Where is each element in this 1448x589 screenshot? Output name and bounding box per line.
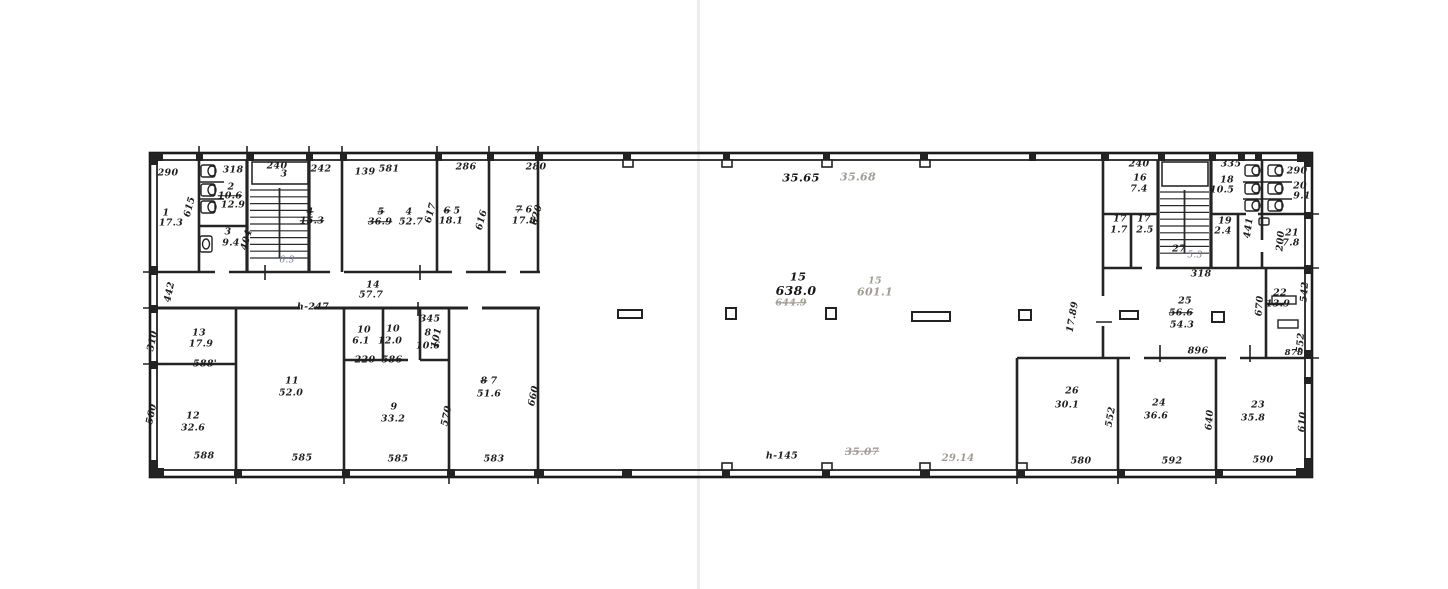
dimension-label-rotated: 670	[1254, 295, 1265, 316]
room-area-label: 35.8	[1241, 413, 1265, 423]
dimension-label-rotated: 660	[527, 385, 541, 407]
dimension-label: 588	[194, 451, 215, 461]
dimension-label: 11	[285, 376, 299, 386]
dimension-label: 280	[526, 162, 547, 172]
dimension-label: 17	[1137, 214, 1151, 224]
room-area-label: 54.3	[1170, 320, 1194, 330]
dimension-label-rotated: 616	[475, 209, 490, 231]
room-area-label: 35.65	[782, 172, 820, 184]
room-area-label: 30.1	[1055, 400, 1079, 410]
dimension-label: 580	[1071, 456, 1092, 466]
dimension-label-rotated: 617	[424, 202, 439, 224]
room-area-label: 10.5	[1210, 185, 1234, 195]
dimension-label: 240	[1129, 159, 1150, 169]
room-area-label: 1.7	[1110, 225, 1127, 235]
dimension-label: 27	[1172, 244, 1186, 254]
handwritten-mark: 6.3	[279, 257, 294, 266]
dimension-label-rotated: 570	[440, 405, 454, 427]
dimension-label: 290	[1287, 166, 1308, 176]
room-area-label: 36.9	[368, 217, 392, 227]
dimension-label: 592	[1162, 456, 1183, 466]
dimension-label: 585	[388, 454, 409, 464]
dimension-label: 13	[192, 328, 206, 338]
room-area-label: 51.6	[477, 389, 501, 399]
dimension-label: 318	[1191, 269, 1212, 279]
dimension-label-rotated: 441	[1243, 217, 1255, 239]
dimension-label: 583	[484, 454, 505, 464]
room-area-label: 52.7	[399, 217, 423, 227]
plan-labels-layer: 290117.3615318210.612.939.440424036.3242…	[0, 0, 1448, 589]
dimension-label-rotated: 560	[145, 403, 159, 425]
floor-plan-scan: 290117.3615318210.612.939.440424036.3242…	[0, 0, 1448, 589]
dimension-label: 9	[391, 402, 398, 412]
dimension-label: 10	[357, 325, 371, 335]
dimension-label: 896	[1188, 346, 1209, 356]
room-area-label: 12.9	[221, 200, 245, 210]
dimension-label: 335	[1221, 159, 1242, 169]
dimension-label: h-247	[297, 302, 329, 312]
dimension-label: 581	[379, 164, 400, 174]
dimension-label: 7	[516, 205, 523, 215]
room-area-label: 17.9	[189, 339, 213, 349]
dimension-label: 3	[225, 227, 232, 237]
dimension-label-rotated: 200	[1275, 230, 1286, 251]
room-area-label: 36.6	[1144, 411, 1168, 421]
room-area-label: 32.6	[181, 423, 205, 433]
dimension-label: 139	[355, 167, 376, 177]
room-area-label: 52.0	[279, 388, 303, 398]
room-area-label: 35.07	[845, 447, 879, 458]
dimension-label-rotated: 17.89	[1066, 301, 1081, 333]
dimension-label: 290	[158, 168, 179, 178]
dimension-label: 8	[481, 376, 488, 386]
room-area-label: 644.9	[775, 298, 806, 308]
dimension-label: 23	[1251, 400, 1265, 410]
room-area-label: 2.5	[1136, 225, 1153, 235]
dimension-label: 586	[382, 355, 403, 365]
dimension-label: 10	[386, 324, 400, 334]
room-area-label: 638.0	[776, 285, 817, 298]
dimension-label-rotated: 404	[240, 229, 255, 251]
room-area-label: 13.9	[1266, 299, 1290, 309]
dimension-label-rotated: 640	[1204, 409, 1215, 430]
dimension-label: 878	[1285, 349, 1304, 358]
dimension-label: 590	[1253, 455, 1274, 465]
handwritten-mark: 5.3	[1187, 252, 1202, 261]
dimension-label: 242	[311, 164, 332, 174]
dimension-label: 16	[1133, 173, 1147, 183]
dimension-label: 15	[868, 276, 882, 286]
room-area-label: 2.4	[1214, 226, 1231, 236]
room-area-label: 29.14	[942, 454, 975, 464]
dimension-label: 585	[292, 453, 313, 463]
dimension-label-rotated: 542	[1299, 281, 1310, 302]
dimension-label: 15	[790, 271, 807, 283]
room-area-label: 57.7	[359, 290, 383, 300]
room-area-label: 9.4	[222, 238, 239, 248]
dimension-label: 588'	[193, 359, 217, 369]
dimension-label-rotated: 610	[1297, 411, 1308, 432]
dimension-label-rotated: 310	[146, 330, 160, 352]
room-area-label: 9.1	[1293, 191, 1310, 201]
dimension-label: 17	[1113, 214, 1127, 224]
room-area-label: 12.0	[378, 336, 402, 346]
room-area-label: 15.3	[300, 216, 324, 226]
dimension-label: h-145	[766, 451, 798, 461]
room-area-label: 601.1	[857, 287, 893, 298]
dimension-label: 345	[420, 314, 441, 324]
dimension-label: 26	[1065, 386, 1079, 396]
room-area-label: 56.6	[1169, 308, 1193, 318]
room-area-label: 17.3	[159, 218, 183, 228]
dimension-label-rotated: 101	[430, 327, 444, 349]
dimension-label: 24	[1152, 398, 1166, 408]
dimension-label-rotated: 620	[530, 204, 545, 226]
room-area-label: 7.4	[1130, 184, 1147, 194]
dimension-label: 286	[456, 162, 477, 172]
room-area-label: 6.1	[352, 336, 369, 346]
dimension-label: 7	[491, 376, 498, 386]
dimension-label-rotated: 615	[183, 196, 198, 218]
dimension-label-rotated: 442	[163, 281, 177, 303]
room-area-label: 35.68	[840, 172, 876, 183]
dimension-label: 12	[186, 411, 200, 421]
dimension-label: 220	[355, 355, 376, 365]
dimension-label-rotated: 552	[1105, 406, 1118, 428]
room-area-label: 33.2	[381, 414, 405, 424]
dimension-label: 25	[1178, 296, 1192, 306]
dimension-label: 318	[223, 165, 244, 175]
dimension-label: 3	[281, 169, 288, 179]
room-area-label: 18.1	[439, 216, 463, 226]
dimension-label: 22	[1273, 288, 1287, 298]
